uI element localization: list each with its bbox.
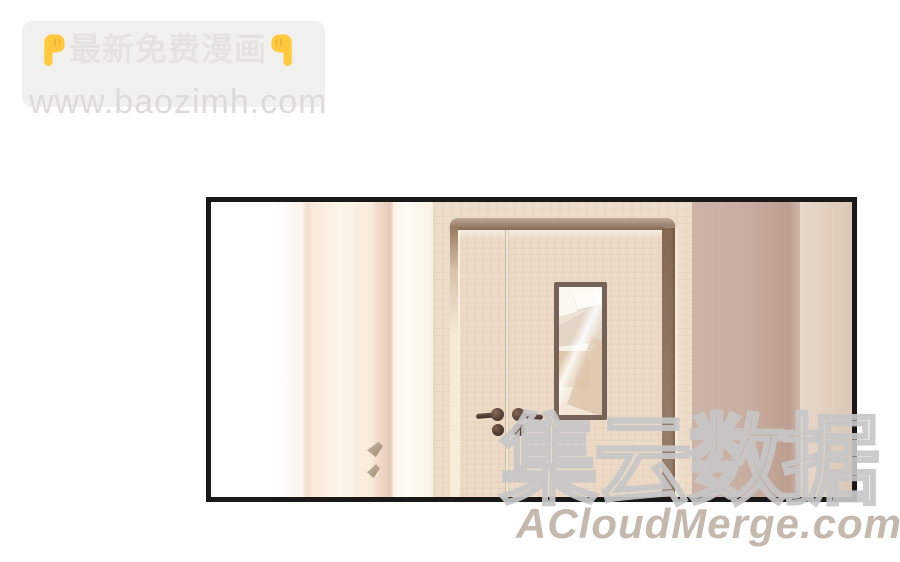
wall-stripe-ivory	[393, 202, 433, 497]
top-watermark-title-row: 最新免费漫画	[36, 29, 300, 69]
glass-reflection-streak	[559, 287, 602, 415]
wall-pink-edge	[303, 202, 313, 497]
wall-stripe-cream	[313, 202, 373, 497]
top-watermark-title: 最新免费漫画	[69, 31, 267, 67]
bottom-watermark-site: ACloudMerge.com	[516, 501, 900, 547]
window-glass	[559, 287, 602, 415]
point-down-icon	[270, 31, 300, 68]
left-wall	[211, 202, 303, 497]
page: { "watermark_top": { "title": "最新免费漫画", …	[0, 0, 900, 562]
door-window	[554, 282, 607, 420]
point-down-icon	[36, 31, 66, 68]
top-watermark-url: www.baozimh.com	[29, 85, 327, 119]
bottom-watermark-brand: 集云数据	[500, 413, 876, 511]
top-watermark-box: 最新免费漫画 www.baozimh.com	[22, 21, 325, 107]
door-frame-molding-left	[450, 228, 458, 497]
door-frame-molding-top	[450, 218, 675, 230]
door-leaf-edge-highlight	[458, 230, 460, 497]
